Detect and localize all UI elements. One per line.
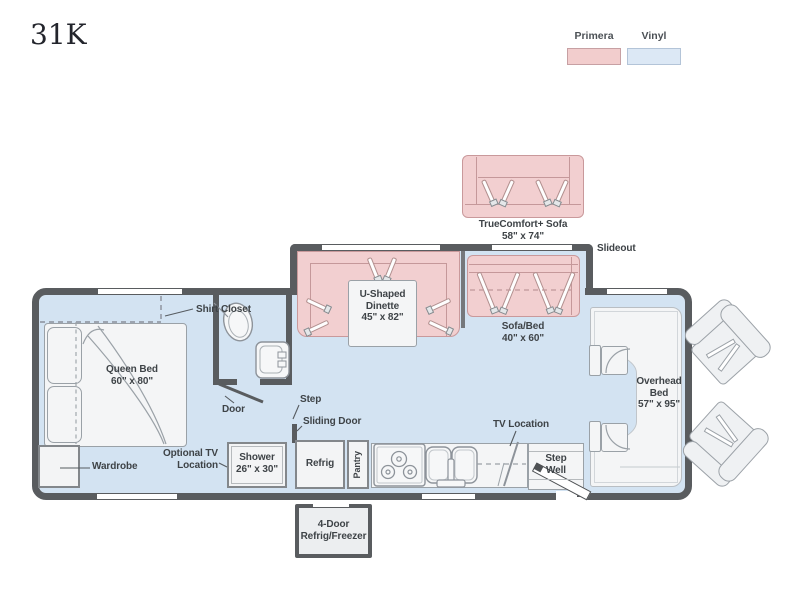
window [422,494,475,499]
window [322,245,440,250]
cab-seat-back [589,421,601,452]
bathroom-wall [260,379,292,385]
shower-label: Shower 26" x 30" [227,452,287,475]
cab-chair [681,295,783,397]
cab-seat-back [589,345,601,376]
sofa-backrest-line [469,272,578,273]
window [97,494,177,499]
window [607,289,667,294]
step-label: Step [300,394,321,406]
floorplan-page: 31K Primera Vinyl TrueComfort+ Sofa 58" … [0,0,800,600]
step-tread-line [529,451,583,452]
sofa-bed-label: Sofa/Bed 40" x 60" [483,321,563,344]
truecomfort-armrest-line [476,157,477,205]
sliding-door-label: Sliding Door [303,416,361,428]
truecomfort-label: TrueComfort+ Sofa 58" x 74" [443,219,603,242]
sofa-armrest-line [571,257,572,315]
pillow [47,386,82,443]
pillow [47,327,82,384]
dinette-sofa-divider [461,251,465,328]
pantry-label: Pantry [347,440,369,489]
wardrobe-label: Wardrobe [92,461,138,473]
kitchen-counter [371,443,528,488]
cab-seat-cushion [601,423,628,452]
truecomfort-armrest-line [569,157,570,205]
bathroom-wall [286,295,292,385]
optional-tv-label: Optional TV Location [150,448,218,471]
four-door-label: 4-Door Refrig/Freezer [295,519,372,542]
legend-primera-swatch [567,48,621,65]
four-door-opening [313,502,349,507]
refrig-label: Refrig [295,458,345,470]
slideout-label: Slideout [597,243,636,255]
legend-primera-label: Primera [566,30,622,42]
door-label: Door [222,404,245,416]
overhead-bed-label: Overhead Bed 57" x 95" [627,376,691,411]
dinette-label: U-Shaped Dinette 45" x 82" [348,289,417,324]
shirt-closet-label: Shirt Closet [196,304,251,316]
tv-location-label: TV Location [488,419,554,431]
wardrobe-box [38,445,80,488]
queen-bed-label: Queen Bed 60" x 80" [84,364,180,387]
sofa-backrest-line [469,264,578,265]
cab-chair [679,389,781,491]
legend-vinyl-label: Vinyl [626,30,682,42]
step-well-label: Step Well [528,453,584,476]
truecomfort-backrest-line [478,177,570,178]
step-tread-line [529,479,583,480]
window [492,245,572,250]
truecomfort-seat-line [465,204,581,205]
bathroom-wall [213,379,237,385]
cab-seat-cushion [601,346,628,375]
page-title: 31K [30,20,87,50]
legend-vinyl-swatch [627,48,681,65]
window [98,289,182,294]
